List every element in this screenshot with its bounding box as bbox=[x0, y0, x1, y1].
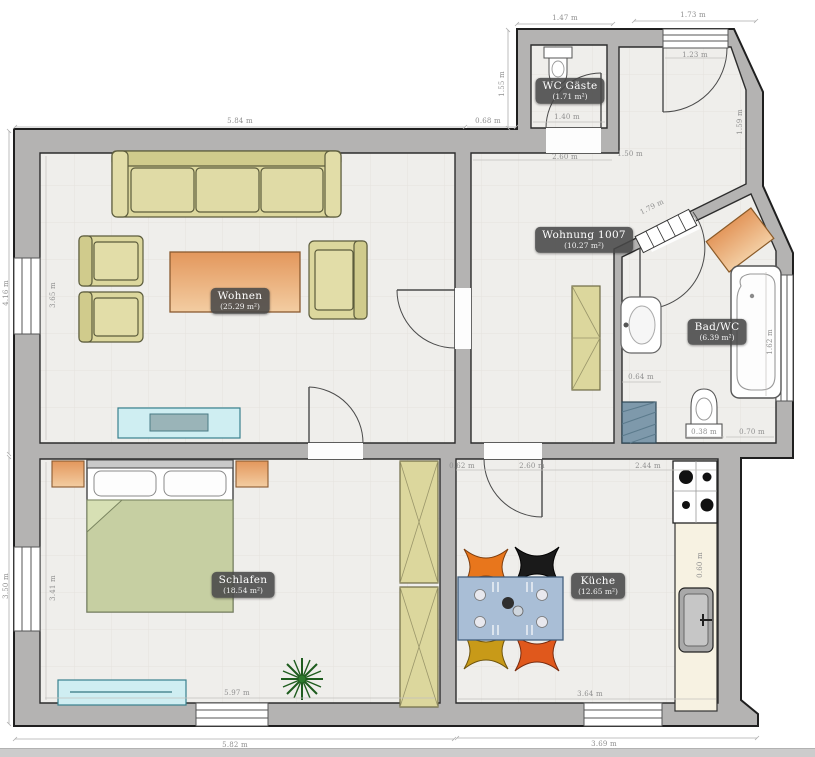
room-area: (10.27 m²) bbox=[542, 242, 626, 250]
dim-entry-top: 1.73 m bbox=[680, 11, 706, 19]
dim-hall-width: 2.60 m bbox=[552, 153, 578, 161]
wardrobe-1 bbox=[400, 461, 438, 583]
dim-kitchen-width: 3.64 m bbox=[577, 690, 603, 698]
tv-lowboard bbox=[118, 408, 240, 438]
floorplan-drawing bbox=[0, 0, 815, 757]
room-area: (12.65 m²) bbox=[578, 588, 618, 596]
dim-living-height: 3.65 m bbox=[49, 282, 57, 308]
dim-kitchen-top-mid: 2.60 m bbox=[519, 462, 545, 470]
dim-bath-bottom: 0.70 m bbox=[739, 428, 765, 436]
room-name: Wohnung 1007 bbox=[542, 230, 626, 242]
dim-bedroom-width: 5.97 m bbox=[224, 689, 250, 697]
shower-washer bbox=[622, 402, 656, 443]
room-label-schlafen: Schlafen (18.54 m²) bbox=[212, 572, 275, 598]
armchair-left-2 bbox=[79, 292, 143, 342]
dim-bottom-right: 3.69 m bbox=[591, 740, 617, 748]
room-label-bad: Bad/WC (6.39 m²) bbox=[688, 319, 747, 345]
bathroom-sink bbox=[621, 297, 661, 353]
room-name: Bad/WC bbox=[695, 322, 740, 334]
dim-tower-left: 1.55 m bbox=[498, 71, 506, 97]
room-area: (25.29 m²) bbox=[218, 303, 263, 311]
dim-wc-width: 1.40 m bbox=[554, 113, 580, 121]
dim-bedroom-height: 3.41 m bbox=[49, 575, 57, 601]
dim-toilet-width: 0.38 m bbox=[691, 428, 717, 436]
room-name: Schlafen bbox=[219, 575, 268, 587]
floorplan-canvas: Wohnen (25.29 m²) Schlafen (18.54 m²) Kü… bbox=[0, 0, 815, 757]
dim-entry-width: 1.23 m bbox=[682, 51, 708, 59]
wardrobe-2 bbox=[400, 587, 438, 707]
dim-left-lower: 3.50 m bbox=[2, 573, 10, 599]
kitchen-sink bbox=[679, 588, 713, 652]
dim-kitchen-top-left: 0.62 m bbox=[449, 462, 475, 470]
dim-wc-top: 1.47 m bbox=[552, 14, 578, 22]
room-area: (1.71 m²) bbox=[542, 93, 597, 101]
nightstand-left bbox=[52, 461, 84, 487]
hall-cabinet bbox=[572, 286, 600, 390]
room-label-wc-gaeste: WC Gäste (1.71 m²) bbox=[535, 78, 604, 104]
duvet bbox=[87, 500, 233, 612]
dim-top-main: 5.84 m bbox=[227, 117, 253, 125]
pillow bbox=[94, 471, 156, 496]
sofa bbox=[112, 151, 341, 217]
window-bedroom-left bbox=[14, 547, 40, 631]
dim-hall-width2: 1.50 m bbox=[617, 150, 643, 158]
room-area: (6.39 m²) bbox=[695, 334, 740, 342]
dim-entry-right: 1.59 m bbox=[736, 109, 744, 135]
armchair-left-1 bbox=[79, 236, 143, 286]
room-label-wohnen: Wohnen (25.29 m²) bbox=[211, 288, 270, 314]
page-bottom-bar bbox=[0, 748, 815, 757]
window-bedroom-bottom bbox=[196, 703, 268, 726]
room-name: Küche bbox=[578, 576, 618, 588]
room-label-kueche: Küche (12.65 m²) bbox=[571, 573, 625, 599]
nightstand-right bbox=[236, 461, 268, 487]
room-area: (18.54 m²) bbox=[219, 587, 268, 595]
dim-tub-length: 1.62 m bbox=[766, 329, 774, 355]
window-kitchen-bottom bbox=[584, 703, 662, 726]
room-name: WC Gäste bbox=[542, 81, 597, 93]
dim-kitchen-top-right: 2.44 m bbox=[635, 462, 661, 470]
room-label-wohnung-1007: Wohnung 1007 (10.27 m²) bbox=[535, 227, 633, 253]
room-name: Wohnen bbox=[218, 291, 263, 303]
dim-top-step: 0.68 m bbox=[475, 117, 501, 125]
dim-bath-sink: 0.64 m bbox=[628, 373, 654, 381]
armchair-right bbox=[309, 241, 367, 319]
dim-counter-depth: 0.60 m bbox=[696, 552, 704, 578]
pillow bbox=[164, 471, 226, 496]
window-living-left bbox=[14, 258, 40, 334]
plant bbox=[281, 658, 323, 700]
dim-left-upper: 4.16 m bbox=[2, 280, 10, 306]
